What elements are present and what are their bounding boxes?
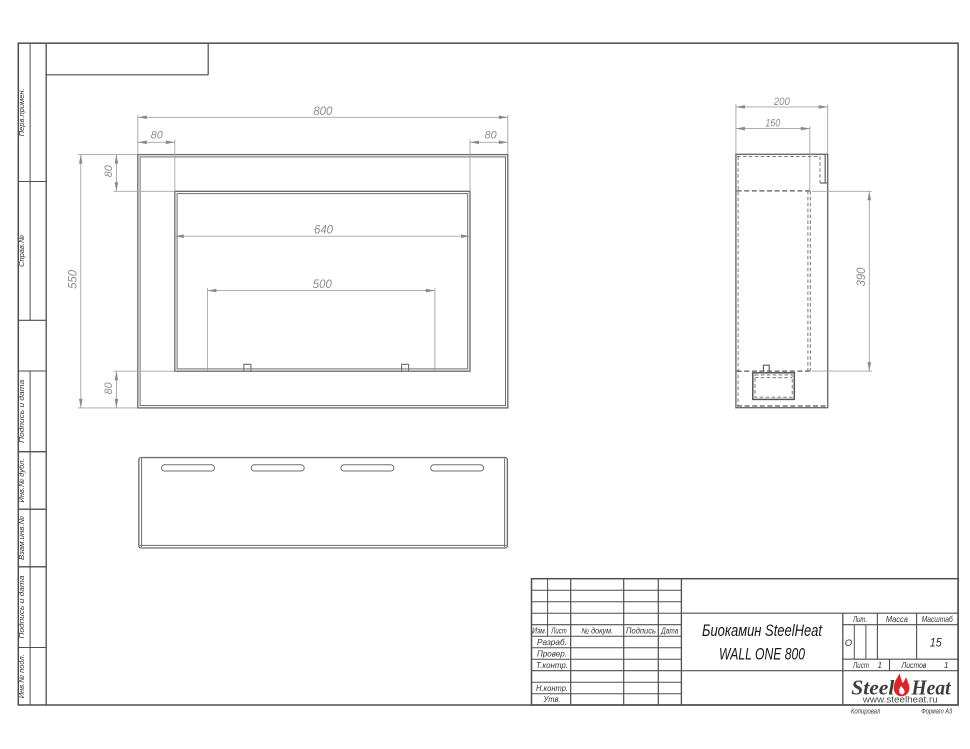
svg-text:Копировал: Копировал <box>851 706 881 715</box>
svg-text:WALL ONE 800: WALL ONE 800 <box>719 646 806 664</box>
svg-text:160: 160 <box>765 117 781 129</box>
svg-text:Инв.№ дубл.: Инв.№ дубл. <box>17 458 26 502</box>
svg-text:80: 80 <box>103 382 115 395</box>
svg-text:1: 1 <box>878 661 883 670</box>
svg-text:390: 390 <box>854 267 868 286</box>
svg-text:Масштаб: Масштаб <box>922 615 954 624</box>
svg-text:Изм.: Изм. <box>532 626 547 635</box>
svg-text:80: 80 <box>485 130 498 142</box>
svg-text:15: 15 <box>930 638 943 650</box>
svg-text:№ докум.: № докум. <box>581 626 613 635</box>
svg-text:О: О <box>845 638 853 649</box>
svg-text:80: 80 <box>103 164 115 177</box>
svg-text:80: 80 <box>151 130 164 142</box>
svg-text:200: 200 <box>773 96 791 108</box>
svg-text:Взам.инв.№: Взам.инв.№ <box>17 516 26 560</box>
svg-text:500: 500 <box>313 277 332 291</box>
svg-text:Лист: Лист <box>852 661 869 670</box>
svg-text:640: 640 <box>314 223 333 237</box>
svg-text:www.steelheat.ru: www.steelheat.ru <box>862 695 938 706</box>
svg-text:Листов: Листов <box>901 661 927 670</box>
svg-text:Утв.: Утв. <box>543 695 561 704</box>
svg-text:Т.контр.: Т.контр. <box>536 661 568 670</box>
svg-text:Подпись и дата: Подпись и дата <box>17 380 26 443</box>
svg-text:Подпись: Подпись <box>626 626 656 635</box>
svg-text:Дата: Дата <box>660 626 678 635</box>
svg-text:Н.контр.: Н.контр. <box>536 684 568 693</box>
svg-text:Подпись и дата: Подпись и дата <box>17 576 26 639</box>
svg-text:Лист: Лист <box>550 626 567 635</box>
svg-text:Биокамин SteelHeat: Биокамин SteelHeat <box>702 622 823 640</box>
svg-text:Провер.: Провер. <box>537 649 567 658</box>
svg-text:Лит.: Лит. <box>852 615 867 624</box>
svg-text:550: 550 <box>65 270 79 289</box>
svg-text:Формат А3: Формат А3 <box>921 706 953 715</box>
svg-text:Справ.№: Справ.№ <box>17 235 26 267</box>
svg-text:1: 1 <box>944 661 949 670</box>
svg-text:Разраб.: Разраб. <box>537 638 567 647</box>
svg-text:Перв.примен.: Перв.примен. <box>17 88 26 136</box>
svg-text:Масса: Масса <box>886 615 909 624</box>
svg-text:800: 800 <box>313 104 332 118</box>
svg-text:Инв.№ подл.: Инв.№ подл. <box>17 654 26 698</box>
